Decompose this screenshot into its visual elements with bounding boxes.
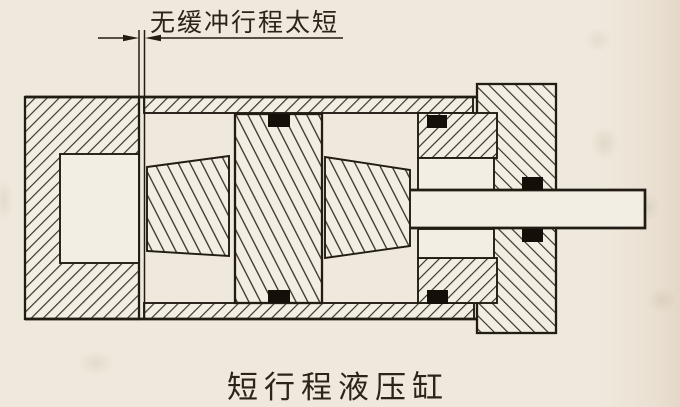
- piston-rod: [410, 190, 645, 228]
- piston: [235, 114, 322, 303]
- piston-seal-bottom: [268, 290, 290, 303]
- cylinder-tube-top-wall: [144, 97, 473, 113]
- figure-caption: 短行程液压缸: [227, 362, 449, 407]
- rod-bushing-upper: [418, 158, 494, 190]
- gland-seal-top: [427, 115, 447, 128]
- scanned-textbook-figure: 无缓冲行程太短 短行程液压缸: [0, 0, 680, 407]
- piston-left-taper: [147, 156, 229, 256]
- gland-seal-bottom: [427, 290, 448, 304]
- hydraulic-cylinder-cross-section-diagram: [0, 0, 680, 407]
- rod-bushing-lower: [418, 229, 494, 258]
- rod-seal-upper: [522, 177, 543, 190]
- left-end-cap-cavity: [60, 154, 139, 263]
- stroke-annotation-label: 无缓冲行程太短: [150, 3, 339, 39]
- cylinder-tube-bottom-wall: [144, 303, 474, 319]
- piston-seal-top: [268, 114, 290, 127]
- rod-seal-lower: [522, 229, 543, 242]
- piston-right-taper: [325, 157, 410, 258]
- dimension-arrow-left-icon: [123, 35, 139, 41]
